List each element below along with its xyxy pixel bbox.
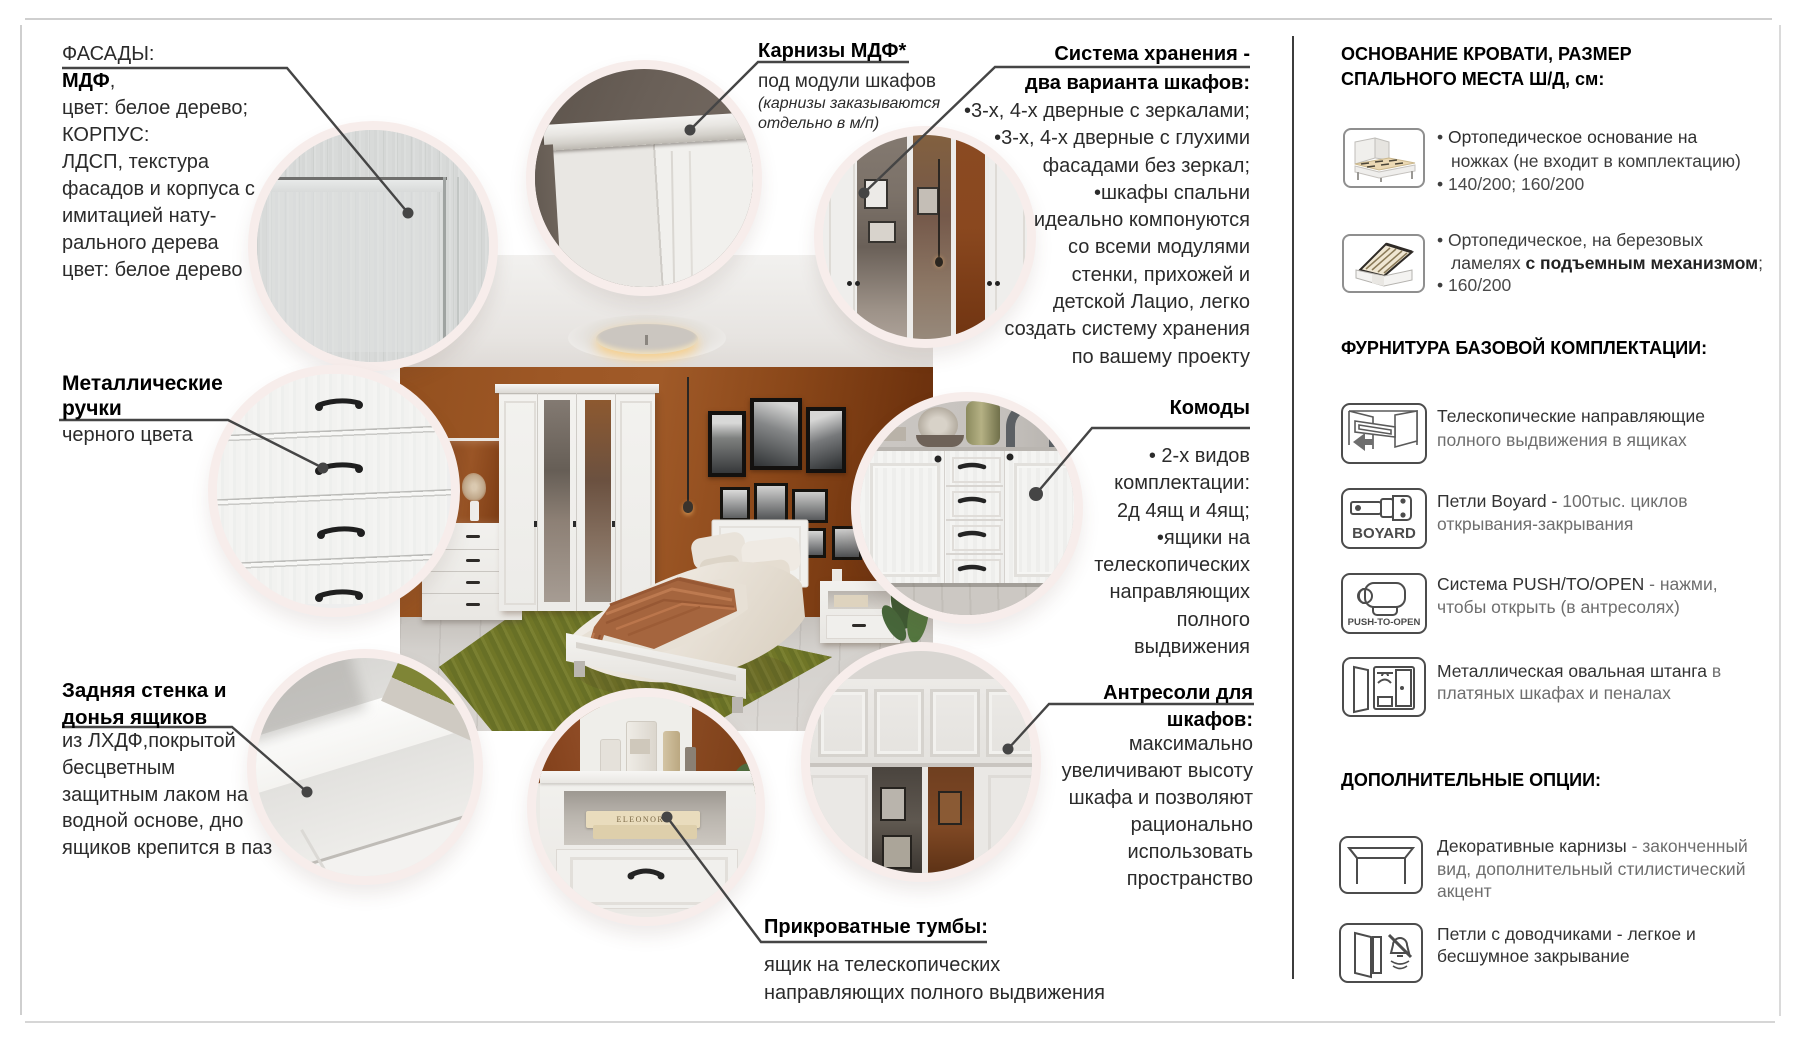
svg-text:BOYARD: BOYARD xyxy=(1352,525,1416,542)
svg-text:PUSH-TO-OPEN: PUSH-TO-OPEN xyxy=(1348,617,1421,628)
